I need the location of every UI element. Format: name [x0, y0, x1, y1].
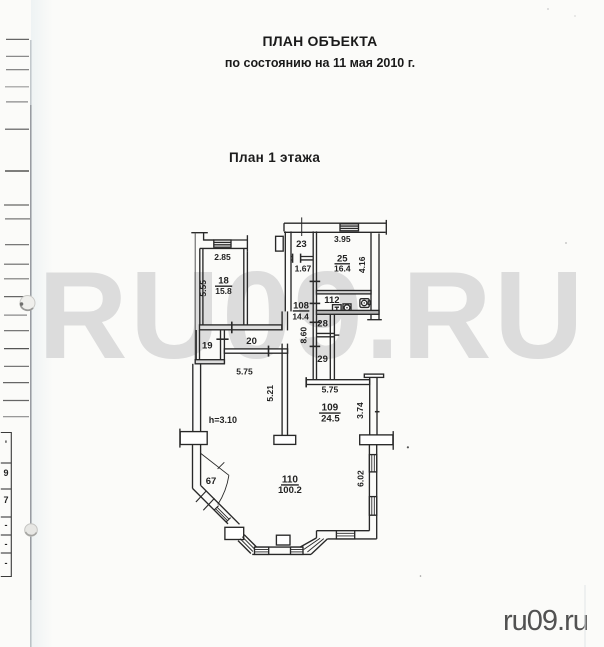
- svg-text:1.67: 1.67: [295, 263, 312, 273]
- svg-text:29: 29: [317, 354, 328, 365]
- svg-text:18: 18: [218, 276, 229, 287]
- svg-text:15.8: 15.8: [215, 286, 232, 296]
- svg-text:19: 19: [202, 340, 213, 351]
- svg-text:h=3.10: h=3.10: [209, 415, 237, 425]
- svg-text:100.2: 100.2: [278, 485, 302, 496]
- svg-text:8.60: 8.60: [298, 327, 308, 344]
- svg-text:6.02: 6.02: [355, 470, 365, 487]
- svg-text:3.74: 3.74: [355, 402, 365, 419]
- svg-text:5.21: 5.21: [265, 385, 275, 402]
- svg-text:14.4: 14.4: [292, 312, 309, 322]
- svg-text:-: -: [5, 539, 8, 549]
- svg-text:2.85: 2.85: [214, 252, 231, 262]
- svg-text:28: 28: [317, 319, 328, 330]
- svg-text:4.16: 4.16: [357, 256, 367, 273]
- svg-text:-: -: [5, 558, 8, 568]
- svg-text:-: -: [5, 520, 8, 530]
- svg-text:5.55: 5.55: [198, 280, 208, 297]
- svg-text:16.4: 16.4: [334, 264, 351, 274]
- svg-text:24.5: 24.5: [321, 414, 340, 425]
- svg-text:7: 7: [3, 495, 8, 505]
- svg-text:23: 23: [296, 239, 307, 250]
- svg-text:5.75: 5.75: [322, 385, 339, 395]
- svg-text:5.75: 5.75: [236, 367, 253, 377]
- svg-text:108: 108: [293, 301, 309, 312]
- svg-text:109: 109: [322, 403, 339, 414]
- svg-text:110: 110: [282, 474, 299, 485]
- svg-text:': ': [5, 439, 7, 449]
- svg-text:3.95: 3.95: [334, 234, 351, 244]
- svg-text:67: 67: [206, 476, 217, 487]
- svg-text:9: 9: [3, 468, 8, 478]
- svg-text:20: 20: [246, 336, 257, 347]
